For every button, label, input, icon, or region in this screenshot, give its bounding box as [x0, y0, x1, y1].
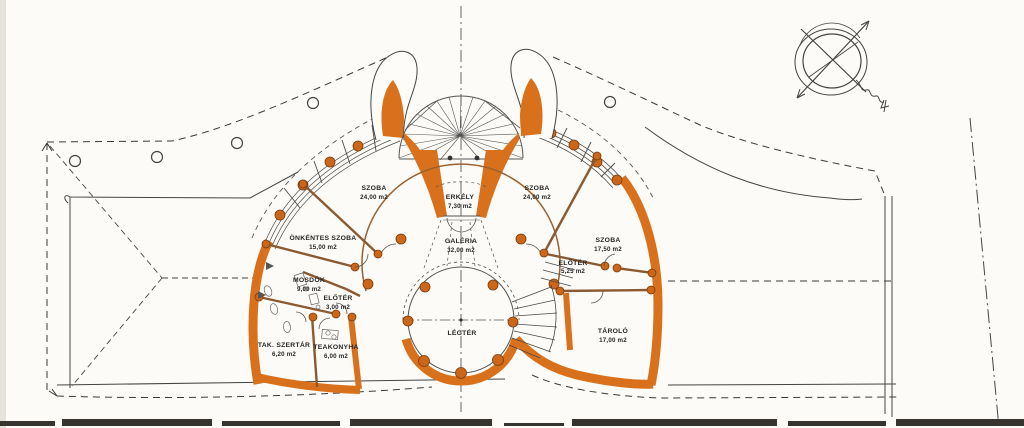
north-arrow-compass: [795, 21, 889, 112]
boundary-top-left: [47, 57, 388, 142]
roof-top-edge: [65, 196, 250, 203]
fan-post-dot: [448, 156, 453, 161]
stair-wall: [566, 293, 570, 350]
room-area-eloter-right: 5,25 m2: [561, 268, 585, 275]
roof-leader-line: [250, 172, 298, 198]
tree-icon: [308, 98, 319, 109]
room-label-mosdok: MOSDÓK: [293, 275, 325, 284]
room-area-szoba-east: 17,50 m2: [594, 246, 622, 253]
legter-center-dot: [459, 318, 462, 321]
roof-hip-upper: [50, 146, 162, 278]
stair-outer-rail: [549, 285, 556, 352]
site-boundary: [47, 57, 899, 398]
south-wall-left: [257, 377, 360, 390]
balcony-door: [443, 216, 480, 232]
tree-icon: [232, 138, 243, 149]
roof-hip-lower: [72, 278, 162, 386]
handwritten-annotation: [856, 80, 889, 112]
floor-plan-drawing: SZOBA 24,00 m2 ERKÉLY 7,30 m2 SZOBA 24,0…: [0, 0, 1024, 428]
fan-valley-lines: [405, 101, 520, 130]
terrace-edge-line: [668, 384, 896, 385]
room-area-szoba-left: 24,00 m2: [360, 194, 388, 201]
room-label-tak-szertar: TAK. SZERTÁR: [258, 340, 310, 349]
room-area-tak-szertar: 6,20 m2: [272, 351, 296, 358]
terrain-curve: [645, 127, 862, 200]
room-label-tarolo: TÁROLÓ: [598, 326, 628, 335]
fan-post-dot: [475, 156, 480, 161]
outer-wall-right: [622, 178, 658, 385]
boundary-bottom-left: [57, 387, 432, 398]
room-label-szoba-left: SZOBA: [361, 185, 386, 192]
tree-icon: [152, 152, 163, 163]
room-label-eloter-right: ELŐTÉR: [558, 258, 587, 267]
boundary-arrows: [42, 143, 57, 396]
eaves-dashed: [252, 110, 654, 238]
room-label-szoba-right: SZOBA: [524, 185, 549, 192]
room-label-szoba-east: SZOBA: [595, 237, 620, 244]
scan-edge-left: [0, 0, 6, 428]
teakonyha-east-wall: [351, 317, 359, 389]
partition-tak-teakonyha: [312, 316, 317, 387]
compass-chord: [809, 42, 858, 77]
room-area-mosdok: 9,00 m2: [297, 286, 321, 293]
horn-right: [511, 49, 557, 138]
site-right-lines: [645, 118, 999, 428]
room-area-galeria: 32,00 m2: [447, 247, 475, 254]
tree-icon: [605, 97, 616, 108]
room-label-erkely: ERKÉLY: [446, 192, 475, 201]
room-label-teakonyha: TEAKONYHA: [313, 344, 358, 351]
partition-walls: [259, 156, 653, 387]
partition-tarolo-top: [560, 290, 652, 291]
room-area-erkely: 7,30 m2: [448, 203, 472, 210]
room-label-galeria: GALÉRIA: [445, 236, 477, 245]
room-area-tarolo: 17,00 m2: [599, 337, 627, 344]
room-label-eloter-left: ELŐTÉR: [323, 293, 352, 302]
room-area-onkentes: 15,00 m2: [309, 244, 337, 251]
scan-artifact-band: [0, 419, 1024, 426]
plot-line-dashdot: [970, 118, 999, 428]
room-label-onkentes: ÖNKÉNTES SZOBA: [290, 233, 357, 242]
room-area-szoba-right: 24,00 m2: [523, 194, 551, 201]
partition-szoba-szoba-east: [544, 156, 597, 253]
room-area-teakonyha: 6,00 m2: [324, 353, 348, 360]
horn-left: [371, 51, 417, 140]
room-area-eloter-left: 3,00 m2: [326, 304, 350, 311]
partition-szoba-east-wall: [616, 268, 653, 273]
tree-icon: [70, 156, 81, 167]
room-label-legter: LÉGTÉR: [447, 328, 476, 337]
